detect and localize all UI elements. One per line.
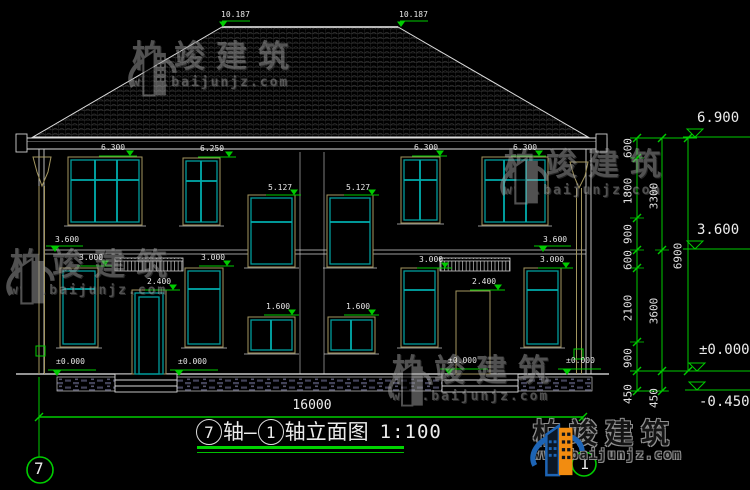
plinth bbox=[57, 374, 592, 392]
elevation-label: 3.000 bbox=[419, 256, 443, 264]
level-label: ±0.000 bbox=[699, 343, 750, 357]
dimension-label: 3300 bbox=[649, 183, 660, 210]
elevation-label: 3.000 bbox=[201, 254, 225, 262]
brand-logo-icon bbox=[528, 419, 586, 481]
title-segment-1: 轴— bbox=[223, 420, 257, 444]
dimension-label: 2100 bbox=[623, 295, 634, 322]
dimension-label: 900 bbox=[623, 348, 634, 368]
title-segment-2: 轴立面图 bbox=[285, 420, 369, 444]
elevation-label: 6.250 bbox=[200, 145, 224, 153]
elevation-label: 3.000 bbox=[79, 254, 103, 262]
elevation-label: 1.600 bbox=[266, 303, 290, 311]
dimension-label: 600 bbox=[623, 138, 634, 158]
overall-dimension: 16000 bbox=[282, 398, 342, 413]
elevation-label: 2.400 bbox=[147, 278, 171, 286]
dimension-label: 450 bbox=[649, 388, 660, 408]
elevation-label: ±0.000 bbox=[178, 358, 207, 366]
elevation-label: 1.600 bbox=[346, 303, 370, 311]
roof bbox=[16, 27, 607, 152]
title-axis-start-bubble: 7 bbox=[196, 419, 222, 445]
brand-logo: 柏竣建筑 www.baijunjz.com bbox=[528, 419, 682, 463]
dimension-label: 1800 bbox=[623, 178, 634, 205]
title-underline bbox=[197, 446, 404, 449]
elevation-label: 2.400 bbox=[472, 278, 496, 286]
dimension-label: 600 bbox=[623, 250, 634, 270]
elevation-label: ±0.000 bbox=[56, 358, 85, 366]
dimension-label: 3600 bbox=[649, 298, 660, 325]
title-scale: 1:100 bbox=[380, 421, 442, 443]
railing bbox=[115, 258, 510, 271]
axis-bubble-left-label: 7 bbox=[34, 462, 44, 476]
elevation-label: 3.000 bbox=[540, 256, 564, 264]
elevation-label: 5.127 bbox=[268, 184, 292, 192]
dimension-label: 6900 bbox=[673, 243, 684, 270]
dimension-label: 450 bbox=[623, 384, 634, 404]
elevation-label: 3.600 bbox=[543, 236, 567, 244]
elevation-label: ±0.000 bbox=[566, 357, 595, 365]
elevation-label: 6.300 bbox=[101, 144, 125, 152]
elevation-label: 10.187 bbox=[399, 11, 428, 19]
cad-elevation-sheet: 柏竣建筑 www.baijunjz.com 柏竣建筑 www.baijunjz.… bbox=[0, 0, 750, 490]
title-underline-thin bbox=[197, 452, 404, 453]
elevation-label: 3.600 bbox=[55, 236, 79, 244]
elevation-label: 6.300 bbox=[414, 144, 438, 152]
elevation-label: 5.127 bbox=[346, 184, 370, 192]
elevation-label: 10.187 bbox=[221, 11, 250, 19]
elevation-label: ±0.000 bbox=[448, 357, 477, 365]
level-label: 6.900 bbox=[697, 111, 739, 125]
title-axis-end-bubble: 1 bbox=[258, 419, 284, 445]
drawing-title: 7 轴— 1 轴立面图 1:100 bbox=[196, 419, 442, 445]
dimension-label: 900 bbox=[623, 224, 634, 244]
level-label: -0.450 bbox=[699, 395, 750, 409]
entry-door bbox=[132, 290, 166, 374]
level-label: 3.600 bbox=[697, 223, 739, 237]
elevation-label: 6.300 bbox=[513, 144, 537, 152]
